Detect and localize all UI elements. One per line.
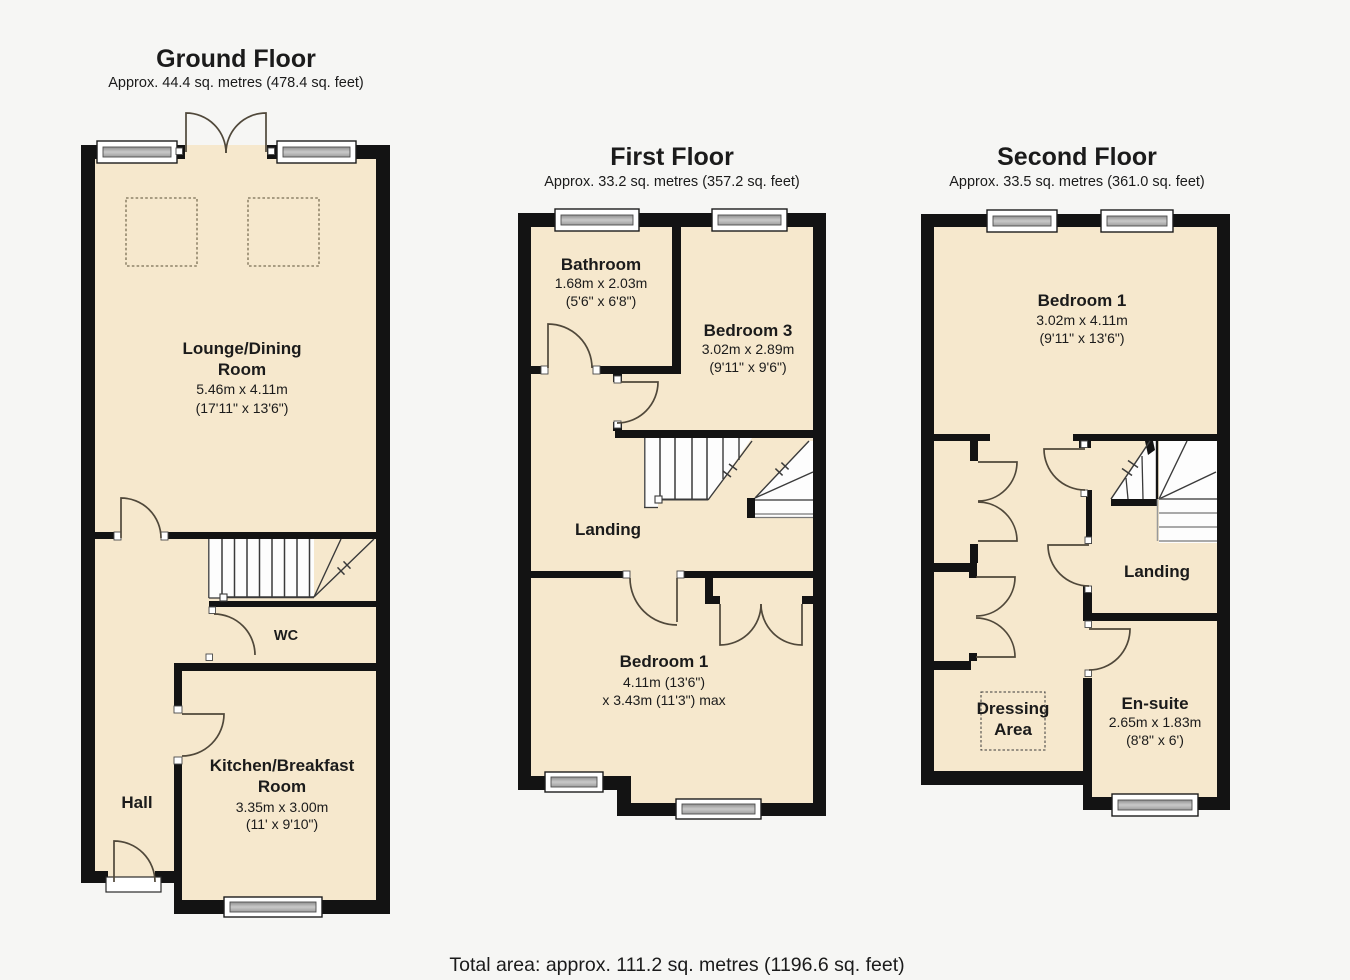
svg-text:5.46m x 4.11m: 5.46m x 4.11m <box>196 381 288 397</box>
svg-text:Landing: Landing <box>1124 562 1190 581</box>
svg-text:3.02m x 2.89m: 3.02m x 2.89m <box>702 341 795 357</box>
svg-text:Approx. 33.2 sq. metres (357.: Approx. 33.2 sq. metres (357.2 sq. feet) <box>544 174 800 190</box>
svg-text:1.68m x 2.03m: 1.68m x 2.03m <box>555 275 648 291</box>
svg-text:Bathroom: Bathroom <box>561 255 641 274</box>
svg-text:x 3.43m (11'3") max: x 3.43m (11'3") max <box>602 692 725 708</box>
svg-text:Area: Area <box>994 720 1032 739</box>
svg-text:4.11m (13'6"): 4.11m (13'6") <box>623 674 705 690</box>
svg-text:(8'8" x 6'): (8'8" x 6') <box>1126 732 1184 748</box>
svg-text:(11' x 9'10"): (11' x 9'10") <box>246 816 318 832</box>
svg-text:Kitchen/Breakfast: Kitchen/Breakfast <box>210 756 355 775</box>
svg-text:Bedroom 1: Bedroom 1 <box>1038 291 1127 310</box>
svg-text:2.65m x 1.83m: 2.65m x 1.83m <box>1109 714 1202 730</box>
svg-text:Dressing: Dressing <box>977 699 1050 718</box>
svg-text:3.35m x 3.00m: 3.35m x 3.00m <box>236 799 329 815</box>
svg-text:First Floor: First Floor <box>610 143 734 171</box>
svg-text:Room: Room <box>218 360 266 379</box>
svg-text:Room: Room <box>258 777 306 796</box>
svg-text:Approx. 44.4 sq. metres (478.: Approx. 44.4 sq. metres (478.4 sq. feet) <box>108 75 364 91</box>
svg-text:(17'11" x 13'6"): (17'11" x 13'6") <box>196 400 289 416</box>
svg-text:En-suite: En-suite <box>1121 694 1188 713</box>
svg-text:Bedroom 3: Bedroom 3 <box>704 321 793 340</box>
svg-text:(9'11" x 9'6"): (9'11" x 9'6") <box>709 359 786 375</box>
svg-text:Hall: Hall <box>121 793 152 812</box>
svg-text:Second Floor: Second Floor <box>997 143 1157 171</box>
svg-text:Total area: approx. 111.2 sq.: Total area: approx. 111.2 sq. metres (11… <box>449 954 904 976</box>
svg-text:3.02m x 4.11m: 3.02m x 4.11m <box>1036 312 1128 328</box>
svg-text:Landing: Landing <box>575 520 641 539</box>
svg-text:(9'11" x 13'6"): (9'11" x 13'6") <box>1039 330 1124 346</box>
svg-text:Lounge/Dining: Lounge/Dining <box>183 339 302 358</box>
svg-text:Bedroom 1: Bedroom 1 <box>620 652 709 671</box>
svg-text:(5'6" x 6'8"): (5'6" x 6'8") <box>566 293 637 309</box>
svg-text:WC: WC <box>274 628 299 644</box>
svg-text:Ground Floor: Ground Floor <box>156 45 316 73</box>
svg-text:Approx. 33.5 sq. metres (361.: Approx. 33.5 sq. metres (361.0 sq. feet) <box>949 174 1205 190</box>
